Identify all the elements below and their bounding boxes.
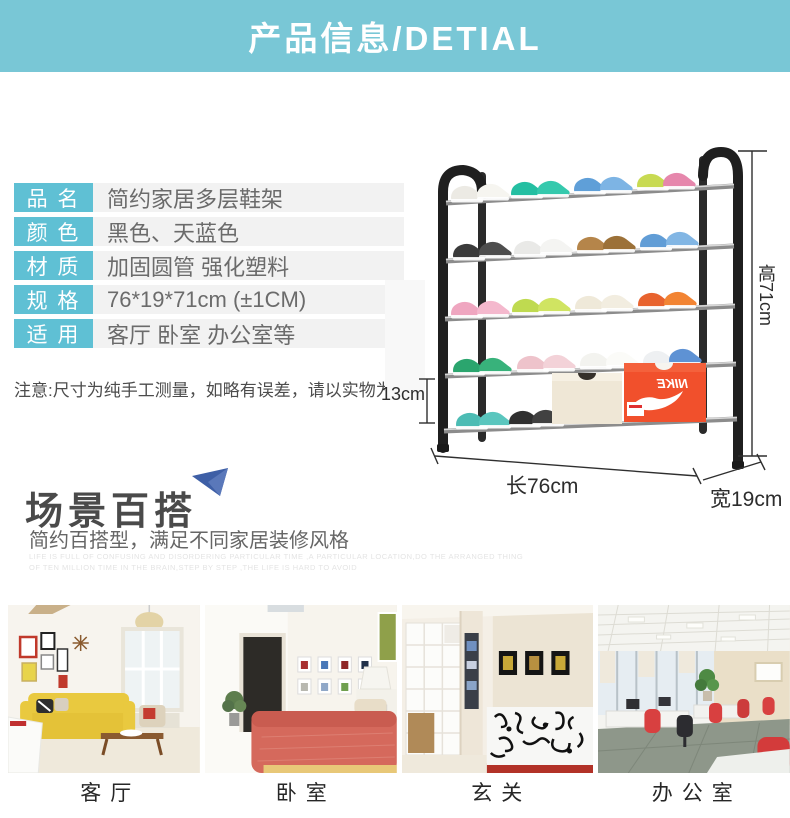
- scene-label-bedroom: 卧室: [204, 777, 400, 807]
- scene-photo-bedroom: [205, 605, 397, 773]
- box-sticker: [627, 402, 644, 416]
- living-room-illustration: [8, 605, 200, 773]
- bedroom-illustration: [205, 605, 397, 773]
- watermark-text: LIFE IS FULL OF CONFUSING AND DISORDERIN…: [29, 551, 523, 573]
- product-detail-page: 产品信息/DETIAL 品 名 简约家居多层鞋架 颜 色 黑色、天蓝色 材 质 …: [0, 0, 790, 818]
- cream-shoebox: [552, 373, 622, 424]
- spec-row-material: 材 质 加固圆管 强化塑料: [14, 251, 404, 280]
- scene-photos: [8, 605, 790, 773]
- scene-photo-office: [598, 605, 790, 773]
- shoebox-brand-text: NIKE: [657, 376, 688, 391]
- rack-feet: [437, 444, 744, 469]
- watermark-line-2: OF TEN MILLION TIME IN THE BRAIN,STEP BY…: [29, 562, 523, 573]
- height-dimension-label: 高71cm: [753, 264, 779, 326]
- shoes-tier-1: [451, 173, 696, 203]
- box-sticker-stripe: [629, 405, 642, 408]
- measurement-note: 注意:尺寸为纯手工测量，如略有误差，请以实物为准: [14, 376, 410, 401]
- accent-triangle-icon: [190, 468, 230, 498]
- entryway-illustration: [402, 605, 594, 773]
- scene-photo-entryway: [402, 605, 594, 773]
- spec-row-color: 颜 色 黑色、天蓝色: [14, 217, 404, 246]
- spec-value: 黑色、天蓝色: [93, 217, 404, 246]
- wall-frames: [498, 651, 569, 675]
- scene-photo-living-room: [8, 605, 200, 773]
- scene-labels-row: 客厅 卧室 玄关 办公室: [8, 777, 790, 807]
- spec-label: 材 质: [14, 251, 93, 280]
- spec-row-size: 规 格 76*19*71cm (±1CM): [14, 285, 404, 314]
- scene-section-subtitle: 简约百搭型，满足不同家居装修风格: [29, 524, 349, 553]
- spec-value: 76*19*71cm (±1CM): [93, 285, 404, 314]
- spec-label: 品 名: [14, 183, 93, 212]
- scene-label-entryway: 玄关: [399, 777, 595, 807]
- length-dimension-label: 长76cm: [506, 470, 578, 500]
- depth-dimension-label: 宽19cm: [710, 483, 782, 513]
- header-banner: 产品信息/DETIAL: [0, 0, 790, 72]
- scene-label-office: 办公室: [595, 777, 790, 807]
- scene-label-living-room: 客厅: [8, 777, 204, 807]
- nike-shoebox: NIKE: [624, 363, 706, 422]
- product-photo-figure: NIKE: [370, 130, 790, 520]
- spec-row-name: 品 名 简约家居多层鞋架: [14, 183, 404, 212]
- spec-label: 适 用: [14, 319, 93, 348]
- tier-height-label: 13cm: [381, 384, 425, 405]
- spec-table: 品 名 简约家居多层鞋架 颜 色 黑色、天蓝色 材 质 加固圆管 强化塑料 规 …: [14, 183, 404, 353]
- spec-value: 客厅 卧室 办公室等: [93, 319, 404, 348]
- watermark-line-1: LIFE IS FULL OF CONFUSING AND DISORDERIN…: [29, 551, 523, 562]
- spec-value: 简约家居多层鞋架: [93, 183, 404, 212]
- spec-row-usage: 适 用 客厅 卧室 办公室等: [14, 319, 404, 348]
- spec-label: 规 格: [14, 285, 93, 314]
- shoe-rack-image: NIKE: [370, 130, 790, 520]
- backdrop-shadow: [385, 280, 425, 400]
- page-title: 产品信息/DETIAL: [248, 12, 541, 60]
- office-illustration: [598, 605, 790, 773]
- spec-value: 加固圆管 强化塑料: [93, 251, 404, 280]
- spec-label: 颜 色: [14, 217, 93, 246]
